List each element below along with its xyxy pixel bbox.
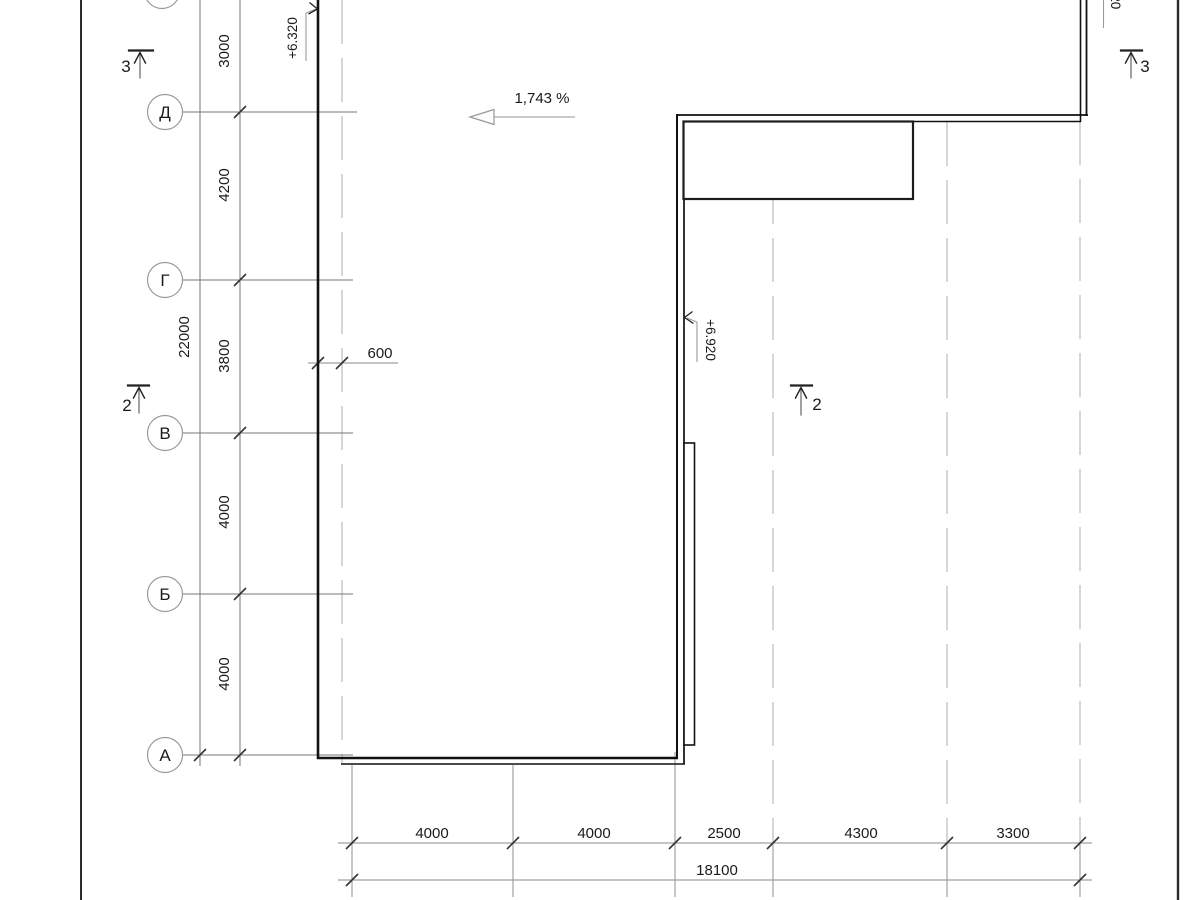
section-number: 3 (121, 57, 130, 76)
dim-value: 4000 (415, 825, 448, 842)
cad-drawing-viewport[interactable]: Д Г В Б А 3000 4200 3800 4000 4000 22000… (0, 0, 1200, 900)
dim-value: 4000 (216, 657, 233, 690)
section-number: 2 (812, 395, 821, 414)
elevation-arrow-icon (685, 312, 694, 324)
dim-offset-600: 600 (367, 345, 392, 362)
elevation-value-partial: 020 (1108, 0, 1123, 9)
elevation-mark-left: +6.320 (285, 3, 318, 62)
bottom-dimension-lines (308, 363, 1092, 880)
axis-row-lines (183, 112, 357, 755)
axis-label: Г (160, 271, 169, 290)
left-dimension-texts: 3000 4200 3800 4000 4000 22000 (176, 34, 233, 690)
axis-bubbles: Д Г В Б А (145, 0, 183, 773)
axis-label: Д (159, 103, 171, 122)
dim-value: 4000 (216, 495, 233, 528)
elevation-mark-inner: +6.920 (685, 312, 719, 363)
slope-arrow-head-icon (470, 110, 494, 125)
dim-value: 3000 (216, 34, 233, 67)
dim-value: 2500 (707, 825, 740, 842)
axis-bubble-partial-top (145, 0, 180, 9)
section-number: 3 (1140, 57, 1149, 76)
ledge-strip (684, 443, 695, 745)
axis-label: В (159, 424, 170, 443)
dim-value: 4200 (216, 168, 233, 201)
axis-label: А (159, 746, 171, 765)
dim-value: 3800 (216, 339, 233, 372)
elevation-value: +6.920 (703, 319, 718, 361)
bottom-dimension-texts: 4000 4000 2500 4300 3300 18100 600 (367, 345, 1029, 879)
dimension-ticks (194, 106, 1086, 886)
dim-value: 4000 (577, 825, 610, 842)
slope-label: 1,743 % (514, 90, 569, 107)
elevation-mark-top-right-partial: 020 (1104, 0, 1124, 28)
dim-value: 3300 (996, 825, 1029, 842)
dim-value: 4300 (844, 825, 877, 842)
left-dimension-lines (200, 0, 240, 766)
axis-label: Б (159, 585, 170, 604)
roof-plan-canvas[interactable]: Д Г В Б А 3000 4200 3800 4000 4000 22000… (0, 0, 1200, 900)
section-number: 2 (122, 396, 131, 415)
slope-annotation: 1,743 % (470, 90, 575, 125)
elevation-value: +6.320 (285, 17, 300, 59)
building-outline (317, 0, 1088, 764)
dim-total-bottom: 18100 (696, 862, 738, 879)
section-markers: 3 3 2 2 (121, 51, 1149, 416)
dim-total-left: 22000 (176, 316, 193, 358)
roof-equipment-rect (684, 122, 914, 200)
elevation-arrow-icon (309, 3, 318, 15)
